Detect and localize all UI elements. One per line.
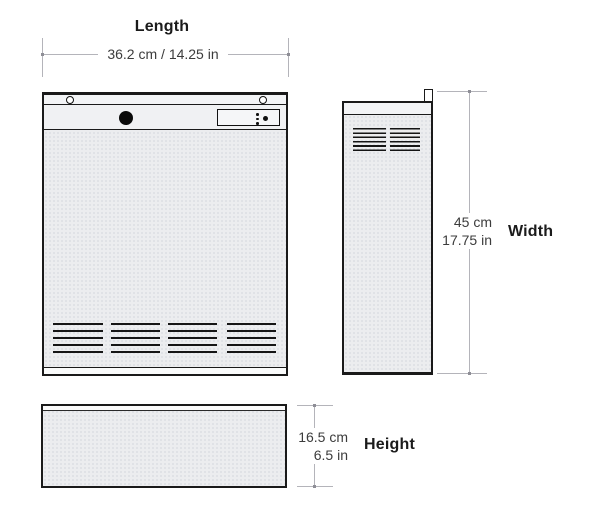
height-value-imperial: 6.5 in (292, 446, 348, 464)
length-endpoint-left (41, 53, 44, 56)
plinth-top-strip (43, 406, 285, 411)
width-value: 45 cm 17.75 in (436, 213, 496, 249)
height-value: 16.5 cm 6.5 in (288, 428, 352, 464)
length-endpoint-right (287, 53, 290, 56)
indicator-dot-large (263, 116, 268, 121)
width-endpoint-bottom (468, 372, 471, 375)
indicator-dot (256, 113, 259, 116)
front-view (42, 92, 288, 376)
dimension-diagram: Length 36.2 cm / 14.25 in (0, 0, 600, 513)
screw-icon (259, 96, 267, 104)
vent-grille-icon (353, 128, 386, 151)
length-value: 36.2 cm / 14.25 in (98, 45, 228, 63)
side-view (342, 101, 433, 375)
power-button-icon (119, 111, 133, 125)
screw-icon (66, 96, 74, 104)
width-endpoint-top (468, 90, 471, 93)
front-top-bar (44, 95, 286, 105)
length-tick-left (42, 38, 43, 77)
vent-grille-icon (227, 323, 276, 353)
vent-grille-icon (53, 323, 103, 353)
indicator-dot (256, 122, 259, 125)
indicator-dot (256, 118, 259, 121)
width-value-imperial: 17.75 in (440, 231, 492, 249)
height-label: Height (364, 436, 415, 454)
length-label: Length (112, 18, 212, 36)
height-endpoint-top (313, 404, 316, 407)
length-tick-right (288, 38, 289, 77)
control-panel-icon (217, 109, 280, 126)
width-tick-bottom (437, 373, 487, 374)
vent-grille-icon (111, 323, 160, 353)
height-value-metric: 16.5 cm (292, 428, 348, 446)
vent-grille-icon (390, 128, 420, 151)
height-endpoint-bottom (313, 485, 316, 488)
width-value-metric: 45 cm (440, 213, 492, 231)
vent-grille-icon (168, 323, 217, 353)
front-base-strip (44, 367, 286, 374)
front-control-bar (44, 105, 286, 130)
width-label: Width (508, 223, 553, 241)
side-top-band (344, 103, 431, 115)
width-tick-top (437, 91, 487, 92)
height-view (41, 404, 287, 488)
